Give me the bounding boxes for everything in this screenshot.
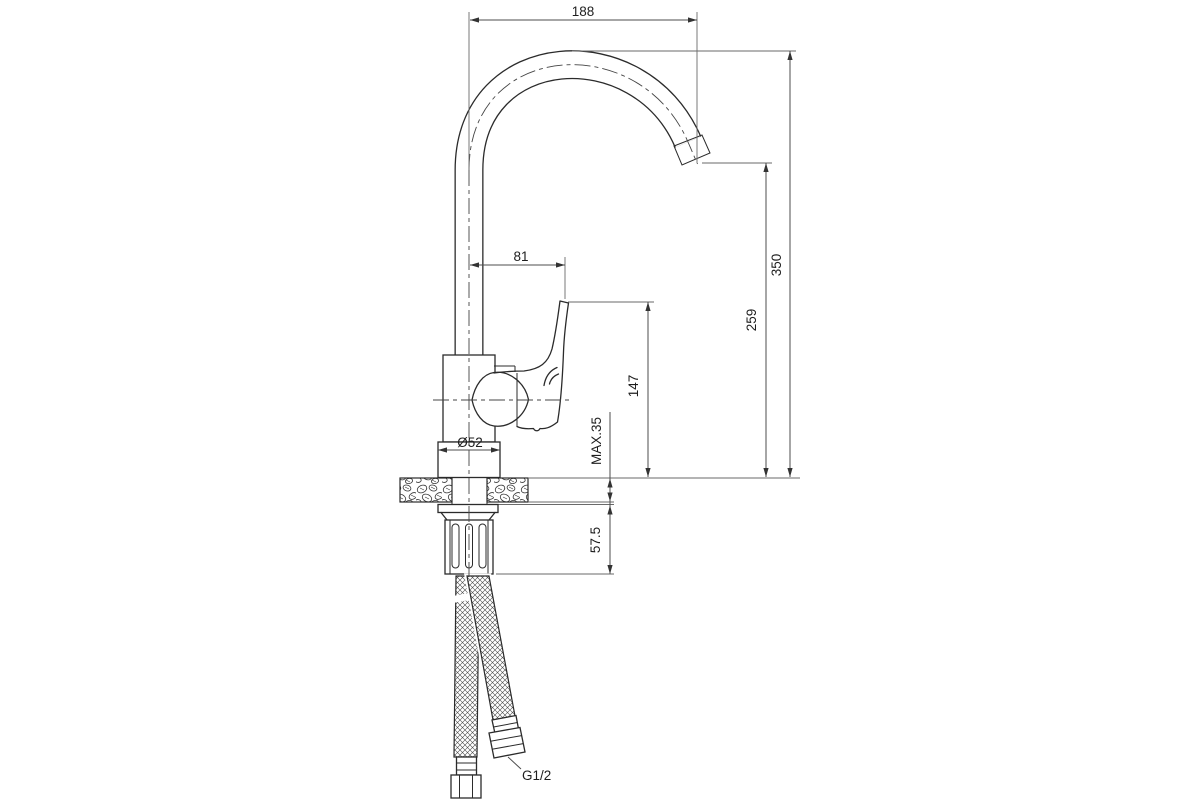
left-hose-nut <box>451 775 481 798</box>
left-hose-collar <box>457 757 477 775</box>
dim-label-hose-thread: G1/2 <box>522 768 551 783</box>
dim-label-max-counter: MAX.35 <box>589 417 604 465</box>
dim-label-handle-reach: 81 <box>513 249 528 264</box>
dim-handle-height: 147 <box>568 302 654 477</box>
page: 188 81 350 259 147 Ø52 <box>0 0 1200 800</box>
supply-hoses <box>451 576 525 798</box>
dim-label-overall-height: 350 <box>769 254 784 277</box>
right-hose-nut <box>489 728 525 759</box>
faucet-technical-drawing: 188 81 350 259 147 Ø52 <box>0 0 1200 800</box>
dim-under-counter: 57.5 <box>496 503 614 574</box>
gooseneck-spout <box>469 65 710 362</box>
leader-line <box>508 757 521 769</box>
mounting-shank <box>452 478 487 504</box>
dim-max-counter-thickness: MAX.35 <box>589 412 613 503</box>
callout-hose-thread: G1/2 <box>508 757 551 783</box>
dim-handle-reach: 81 <box>470 249 565 299</box>
dim-label-spout-outlet-height: 259 <box>744 309 759 332</box>
mounting-nut <box>438 505 498 575</box>
faucet-body <box>438 355 529 478</box>
cartridge-dome <box>472 372 529 426</box>
dim-label-spout-reach: 188 <box>572 4 595 19</box>
dim-spout-outlet-height: 259 <box>702 163 772 477</box>
dim-label-handle-height: 147 <box>626 375 641 398</box>
dim-label-under-counter: 57.5 <box>588 527 603 553</box>
handle-curl <box>544 368 559 386</box>
dim-label-body-diameter: Ø52 <box>457 435 483 450</box>
countertop <box>400 478 800 505</box>
